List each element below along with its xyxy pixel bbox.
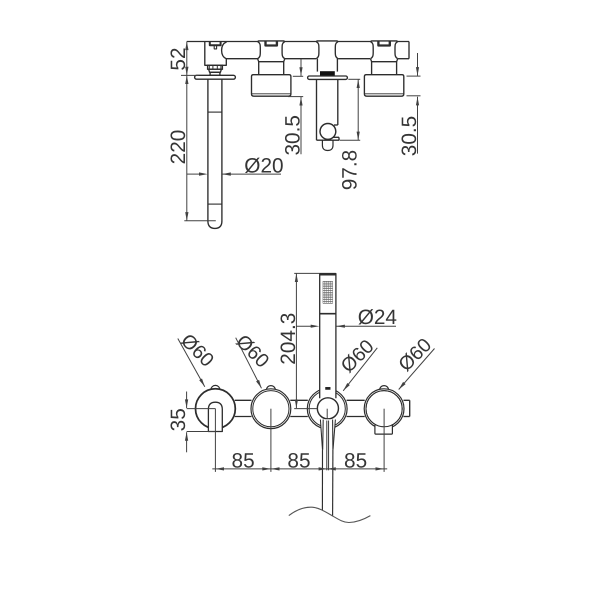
- svg-text:52: 52: [167, 47, 190, 70]
- svg-text:30.5: 30.5: [398, 116, 421, 156]
- svg-text:220: 220: [167, 130, 190, 165]
- svg-text:Ø20: Ø20: [244, 155, 283, 178]
- svg-text:35: 35: [167, 408, 190, 431]
- svg-text:204.3: 204.3: [277, 313, 300, 365]
- svg-text:85: 85: [344, 449, 367, 472]
- svg-text:85: 85: [287, 449, 310, 472]
- svg-text:Ø24: Ø24: [358, 306, 397, 329]
- svg-text:97.8: 97.8: [339, 150, 362, 190]
- svg-text:85: 85: [232, 449, 255, 472]
- svg-text:30.5: 30.5: [281, 115, 304, 155]
